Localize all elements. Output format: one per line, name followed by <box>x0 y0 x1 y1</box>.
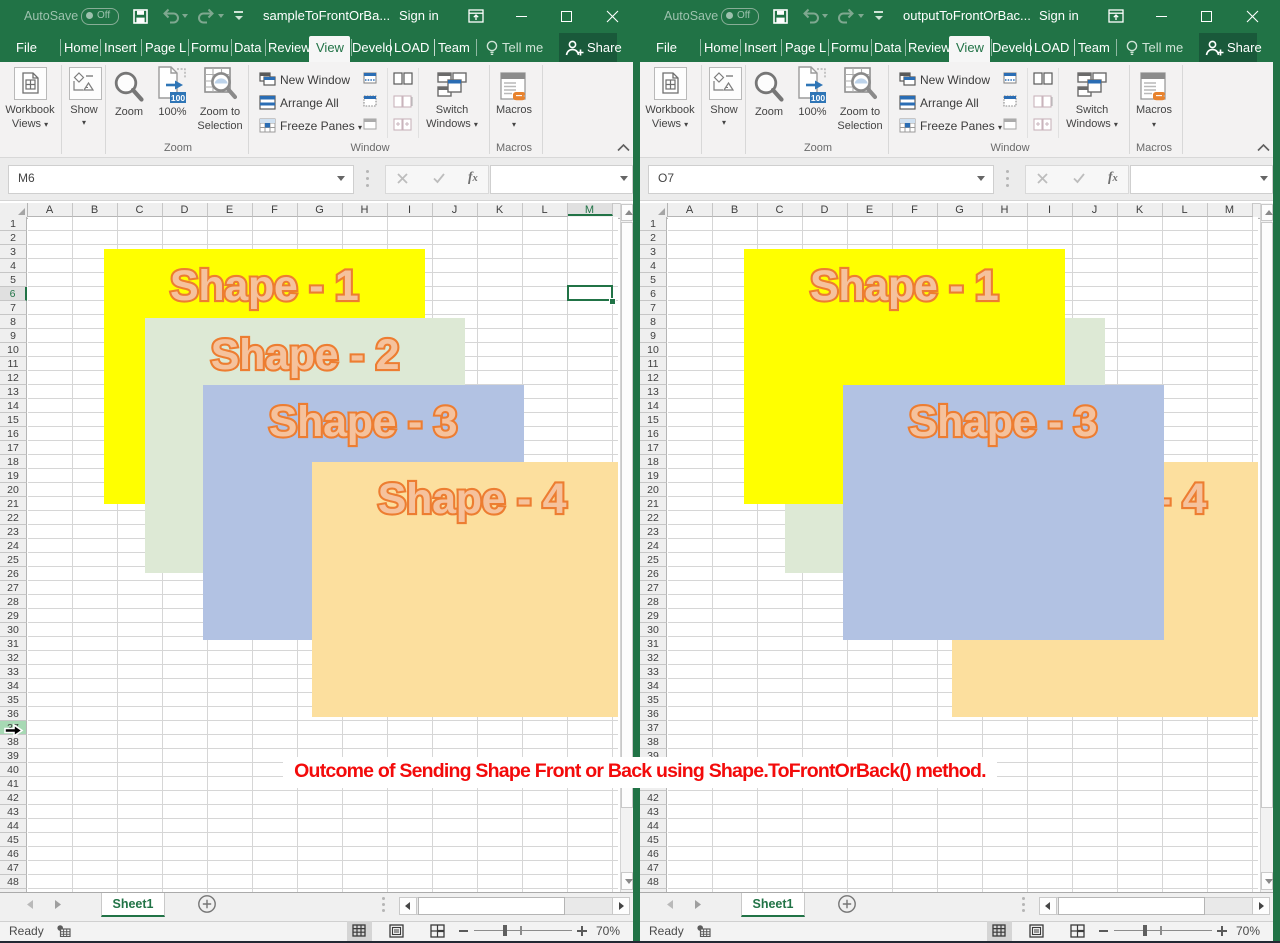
svg-text:100: 100 <box>811 93 825 103</box>
svg-text:100: 100 <box>171 93 185 103</box>
